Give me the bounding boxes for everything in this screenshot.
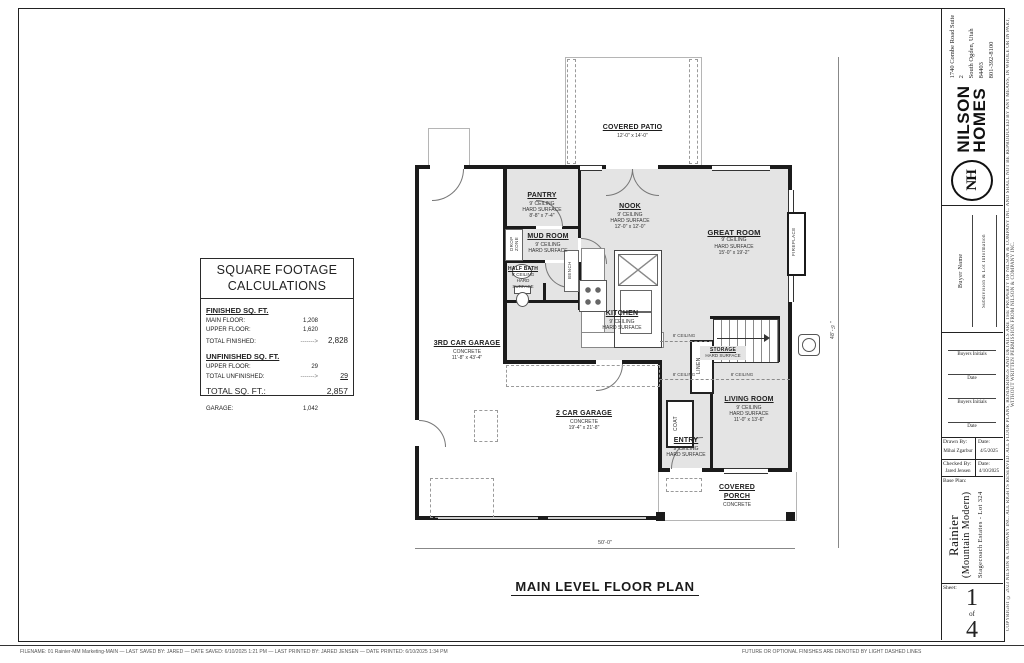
porch-column-right [786,512,795,521]
room-label-storage: STORAGE HARD SURFACE [700,346,746,360]
sqft-title-line1: SQUARE FOOTAGE [201,263,353,279]
window-living-bottom [724,468,768,474]
sqft-main-floor-value: 1,208 [282,317,318,326]
footer-filename: FILENAME: 01 Rainier-MM Marketing-MAIN —… [20,649,448,655]
drawn-date-value: 4/5/2025 [977,449,1001,454]
title-block-divider [941,8,942,640]
room-label-pantry: PANTRY 9' CEILING HARD SURFACE 8'-8" x 7… [508,192,576,220]
base-plan-label: Base Plan: [943,478,966,484]
date-label-2: Date [944,424,1000,429]
window-great-room-right-a [788,190,794,212]
fireplace-label: FIREPLACE [791,218,796,266]
tb-divider-5 [941,476,1003,477]
date-line-1 [948,374,996,375]
sqft-garage-value: 1,042 [282,405,318,414]
garage-optional-a [474,410,498,442]
plan-name: Rainier [946,489,962,581]
room-label-2-car-garage: 2 CAR GARAGE CONCRETE 19'-4" x 21'-8" [545,410,623,431]
checked-by-value: Jared Jensen [942,469,974,474]
drawn-by-value: Mihai Zgarbur [942,449,974,454]
dim-line-right [838,57,839,548]
room-label-kitchen: KITCHEN 9' CEILING HARD SURFACE [592,310,652,331]
ceiling-dash-lower [660,379,790,380]
initials-label-2: Buyers Initials [944,400,1000,405]
nilson-homes-logo: NH NILSON HOMES 1740 Combe Road Suite 2 … [943,11,1001,201]
tb-divider-6 [941,583,1003,584]
room-label-3rd-car-garage: 3RD CAR GARAGE CONCRETE 11'-8" x 43'-4" [428,340,506,361]
sqft-finished-header: FINISHED SQ. FT. [206,305,348,316]
wall-house-garage-divider [503,165,507,364]
drop-zone-label: DROP ZONE [509,230,519,258]
island-oven-upper [620,290,652,312]
sqft-total-finished-value: 2,828 [318,335,348,347]
nh-monogram-icon: NH [951,160,993,201]
sqft-total-value: 2,857 [318,385,348,398]
tb-divider-3 [941,437,1003,438]
ceiling-dash-upper [660,341,712,342]
subdivision-label: Subdivision & Lot Information [982,213,987,329]
sqft-total-label: TOTAL SQ. FT.: [206,385,282,398]
garage-door-right [548,517,646,519]
sqft-total-unfinished-value: 29 [318,372,348,383]
window-great-room-top [712,165,770,171]
copyright-text: COPYRIGHT © 2023 NILSON & COMPANY INC. A… [1006,10,1016,638]
patio-column-left [567,59,576,164]
window-nook [580,165,602,171]
toilet-bowl [516,292,529,307]
tb-divider-v [975,437,976,476]
room-label-entry: ENTRY 9' CEILING HARD SURFACE [664,437,708,458]
room-label-living-room: LIVING ROOM 9' CEILING HARD SURFACE 11'-… [716,396,782,424]
ceiling8-label-a: 8' CEILING [662,333,706,338]
drawn-by-label: Drawn By: [943,439,967,445]
room-label-nook: NOOK 9' CEILING HARD SURFACE 12'-0" x 12… [600,203,660,231]
initials-line-1 [948,350,996,351]
initials-line-2 [948,398,996,399]
coat-label: COAT [673,408,679,438]
room-label-covered-patio: COVERED PATIO 12'-0" x 14'-0" [574,124,691,139]
dim-height-label: 48'-½" [830,310,836,350]
date-line-2 [948,422,996,423]
sqft-total-finished-label: TOTAL FINISHED: [206,338,282,347]
square-footage-box: SQUARE FOOTAGE CALCULATIONS FINISHED SQ.… [200,258,354,396]
buyer-name-label: Buyer Name [958,215,964,327]
room-label-half-bath: HALF BATH 9' CEILING HARD SURFACE [506,266,540,289]
subdivision-line [996,215,997,327]
stairs-arrow-head [764,334,770,342]
checked-by-label: Checked By: [943,461,972,467]
sheet-total: 4 [941,618,1003,642]
utility-symbol-inner [802,338,816,352]
porch-optional-stoop [666,478,702,492]
ceiling8-label-c: 8' CEILING [720,372,764,377]
tb-divider-1 [941,205,1003,206]
date-label-1: Date [944,376,1000,381]
wall-kitchen-garage [503,360,662,364]
sheet-number: 1 [941,586,1003,610]
sqft-total-finished-arrow: -------> [282,338,318,347]
sqft-unf-upper-value: 29 [282,363,318,372]
wall-bath-right-stub [543,283,546,303]
stairs-arrow-line [717,338,765,339]
garage-door-left [438,517,538,519]
garage-optional-b [430,478,494,518]
checked-date-label: Date: [978,461,990,467]
footer-finishes-note: FUTURE OR OPTIONAL FINISHES ARE DENOTED … [742,649,921,655]
footer-rule [0,645,1024,646]
room-label-covered-porch: COVERED PORCH CONCRETE [713,484,761,508]
garage-stoop-outline [428,128,470,166]
ceiling8-label-b: 8' CEILING [662,372,706,377]
sqft-unfinished-header: UNFINISHED SQ. FT. [206,351,348,362]
drawing-title: MAIN LEVEL FLOOR PLAN [505,578,705,596]
buyer-name-line [972,215,973,327]
sqft-unf-upper-label: UPPER FLOOR: [206,363,282,372]
bench-label: BENCH [567,255,572,285]
wall-garage-left [415,165,419,520]
kitchen-range [579,280,607,312]
sqft-total-unfinished-arrow: -------> [282,373,318,382]
room-label-mud-room: MUD ROOM 9' CEILING HARD SURFACE [520,233,576,254]
sqft-garage-label: GARAGE: [206,405,282,414]
sqft-main-floor-label: MAIN FLOOR: [206,317,282,326]
dim-line-bottom [415,548,795,549]
sqft-total-unfinished-label: TOTAL UNFINISHED: [206,373,282,382]
drawn-date-label: Date: [978,439,990,445]
plan-lot: Stagecoach Estates - Lot 324 [977,489,984,581]
patio-column-right [689,59,698,164]
sqft-upper-floor-label: UPPER FLOOR: [206,326,282,335]
window-great-room-right-b [788,276,794,302]
fireplace-box [787,212,806,276]
brand-wordmark: NILSON HOMES [956,85,988,152]
sqft-title-line2: CALCULATIONS [201,279,353,295]
sqft-upper-floor-value: 1,620 [282,326,318,335]
company-address: 1740 Combe Road Suite 2 South Ogden, Uta… [948,11,997,78]
garage-storage-above [506,365,660,387]
tb-divider-4 [941,459,1003,460]
room-label-great-room: GREAT ROOM 9' CEILING HARD SURFACE 15'-0… [694,228,774,256]
dim-width-label: 50'-0" [587,540,623,546]
covered-patio-outline [565,57,702,166]
checked-date-value: 4/10/2025 [977,469,1001,474]
tb-divider-2 [941,332,1003,333]
initials-label-1: Buyers Initials [944,352,1000,357]
plan-style: (Mountain Modern) [961,489,972,581]
island-sink [618,254,658,286]
